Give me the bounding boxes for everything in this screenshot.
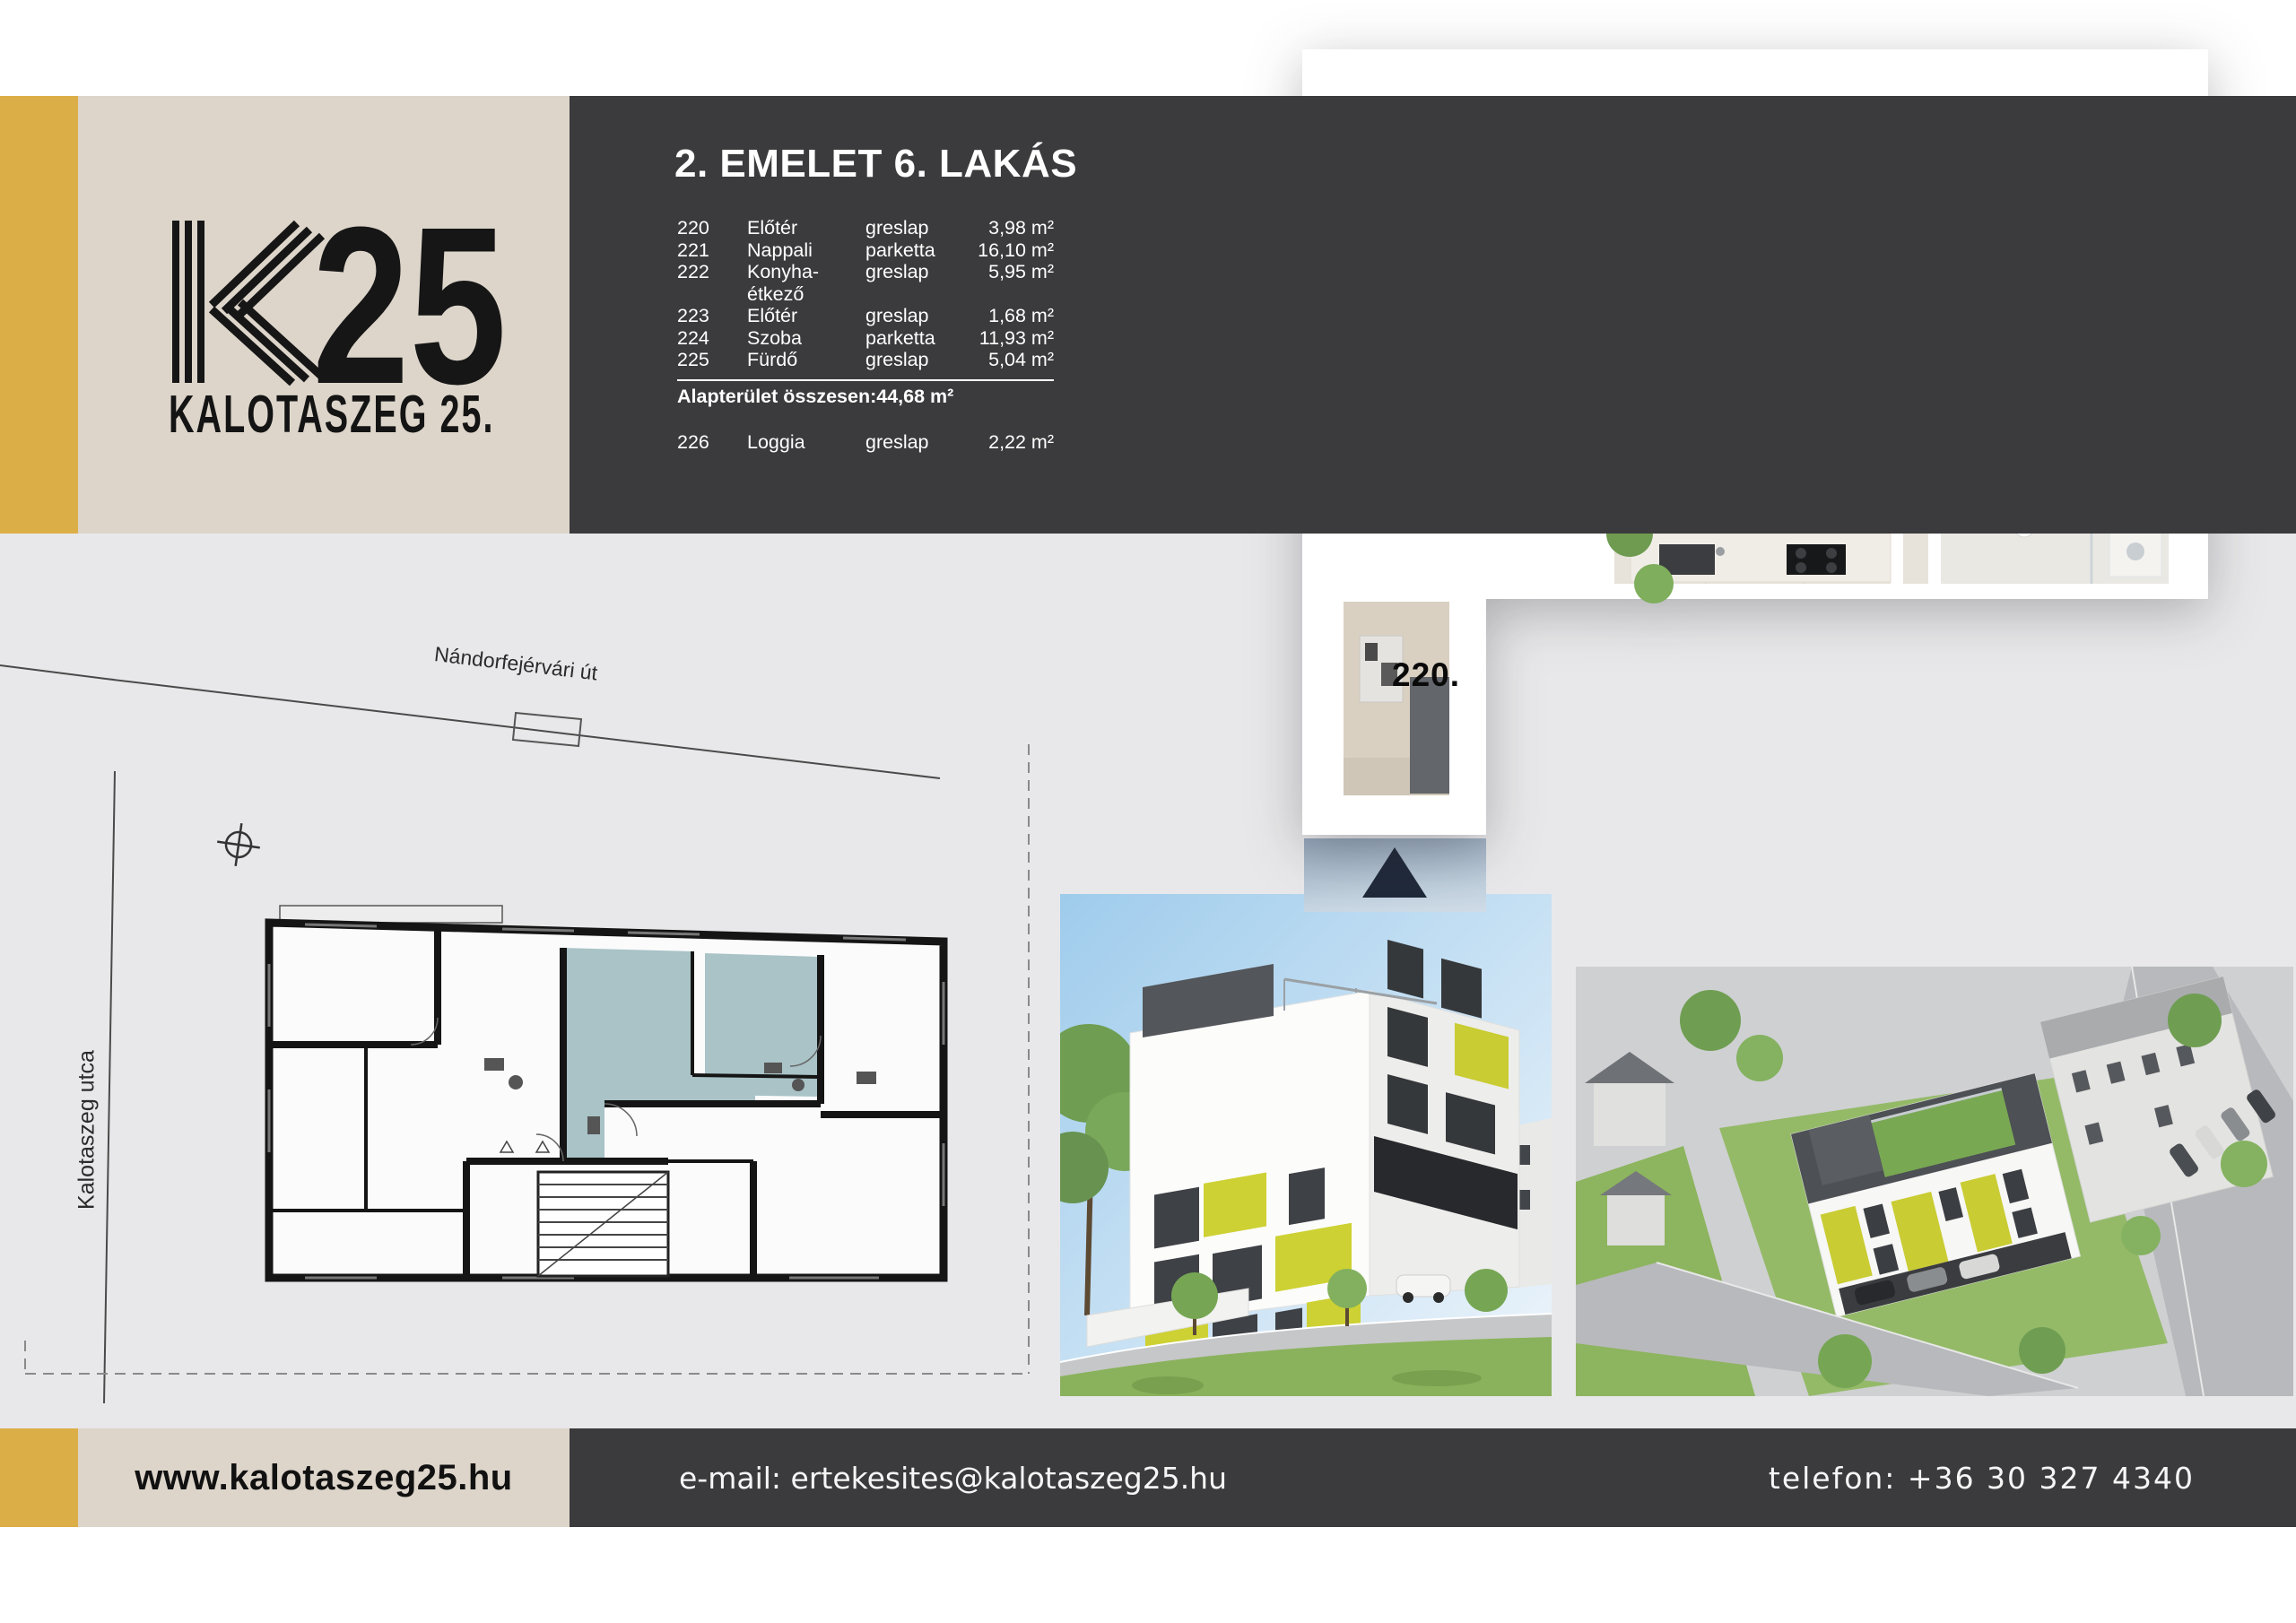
entrance-marker xyxy=(1304,838,1486,912)
up-triangle-icon xyxy=(1304,838,1486,912)
table-row: 225 Fürdő greslap 5,04 m² xyxy=(677,349,1054,371)
building-floorplan xyxy=(269,906,944,1278)
loggia-row: 226 Loggia greslap 2,22 m² xyxy=(677,431,1054,454)
total-row: Alapterület összesen: 44,68 m² xyxy=(677,379,1054,408)
room-floor: parketta xyxy=(865,239,973,262)
room-number: 221 xyxy=(677,239,747,262)
room-floor: greslap xyxy=(865,217,973,239)
footer-logo-panel: www.kalotaszeg25.hu xyxy=(78,1428,570,1527)
room-area: 3,98 m² xyxy=(988,217,1054,239)
room-area: 5,95 m² xyxy=(988,261,1054,305)
room-name: Fürdő xyxy=(747,349,865,371)
room-name: Konyha-étkező xyxy=(747,261,865,305)
building-render-street-view xyxy=(1060,894,1552,1396)
footer-gold-accent xyxy=(0,1428,78,1527)
room-floor: greslap xyxy=(865,349,973,371)
room-floor: greslap xyxy=(865,431,973,454)
room-number: 226 xyxy=(677,431,747,454)
email-link[interactable]: e-mail: ertekesites@kalotaszeg25.hu xyxy=(679,1428,1227,1527)
table-row: 222 Konyha-étkező greslap 5,95 m² xyxy=(677,261,1054,305)
room-name: Szoba xyxy=(747,327,865,350)
room-area: 16,10 m² xyxy=(978,239,1054,262)
room-area: 5,04 m² xyxy=(988,349,1054,371)
building-render-aerial-view xyxy=(1576,967,2293,1396)
unit-title: 2. EMELET 6. LAKÁS xyxy=(674,142,1077,187)
logo-number: 25 xyxy=(312,218,504,386)
room-number: 222 xyxy=(677,261,747,305)
room-name: Loggia xyxy=(747,431,865,454)
gold-accent-bar xyxy=(0,96,78,534)
room-number: 223 xyxy=(677,305,747,327)
room-area: 1,68 m² xyxy=(988,305,1054,327)
phone-link[interactable]: telefon: +36 30 327 4340 xyxy=(1769,1428,2195,1527)
table-row: 223 Előtér greslap 1,68 m² xyxy=(677,305,1054,327)
room-name: Nappali xyxy=(747,239,865,262)
room-number: 225 xyxy=(677,349,747,371)
logo-subtitle: KALOTASZEG 25. xyxy=(169,384,494,445)
room-label-hall: 220. xyxy=(1392,656,1460,694)
room-table: 220 Előtér greslap 3,98 m² 221 Nappali p… xyxy=(677,217,1054,454)
room-name: Előtér xyxy=(747,305,865,327)
street-label-left: Kalotaszeg utca xyxy=(74,1050,100,1210)
website-link[interactable]: www.kalotaszeg25.hu xyxy=(135,1458,512,1498)
table-row: 224 Szoba parketta 11,93 m² xyxy=(677,327,1054,350)
room-number: 224 xyxy=(677,327,747,350)
apartment-datasheet-page: Nándorfejérvári út Kalotaszeg utca xyxy=(0,0,2296,1623)
k25-logo: 25 xyxy=(170,218,504,386)
total-area: 44,68 m² xyxy=(876,386,953,408)
room-number: 220 xyxy=(677,217,747,239)
stairs-symbol xyxy=(538,1172,668,1276)
table-row: 220 Előtér greslap 3,98 m² xyxy=(677,217,1054,239)
room-area: 2,22 m² xyxy=(988,431,1054,454)
room-floor: greslap xyxy=(865,305,973,327)
table-row: 221 Nappali parketta 16,10 m² xyxy=(677,239,1054,262)
total-label: Alapterület összesen: xyxy=(677,386,876,408)
room-floor: parketta xyxy=(865,327,973,350)
compass-icon xyxy=(214,820,263,869)
room-floor: greslap xyxy=(865,261,973,305)
room-area: 11,93 m² xyxy=(979,327,1054,350)
room-name: Előtér xyxy=(747,217,865,239)
